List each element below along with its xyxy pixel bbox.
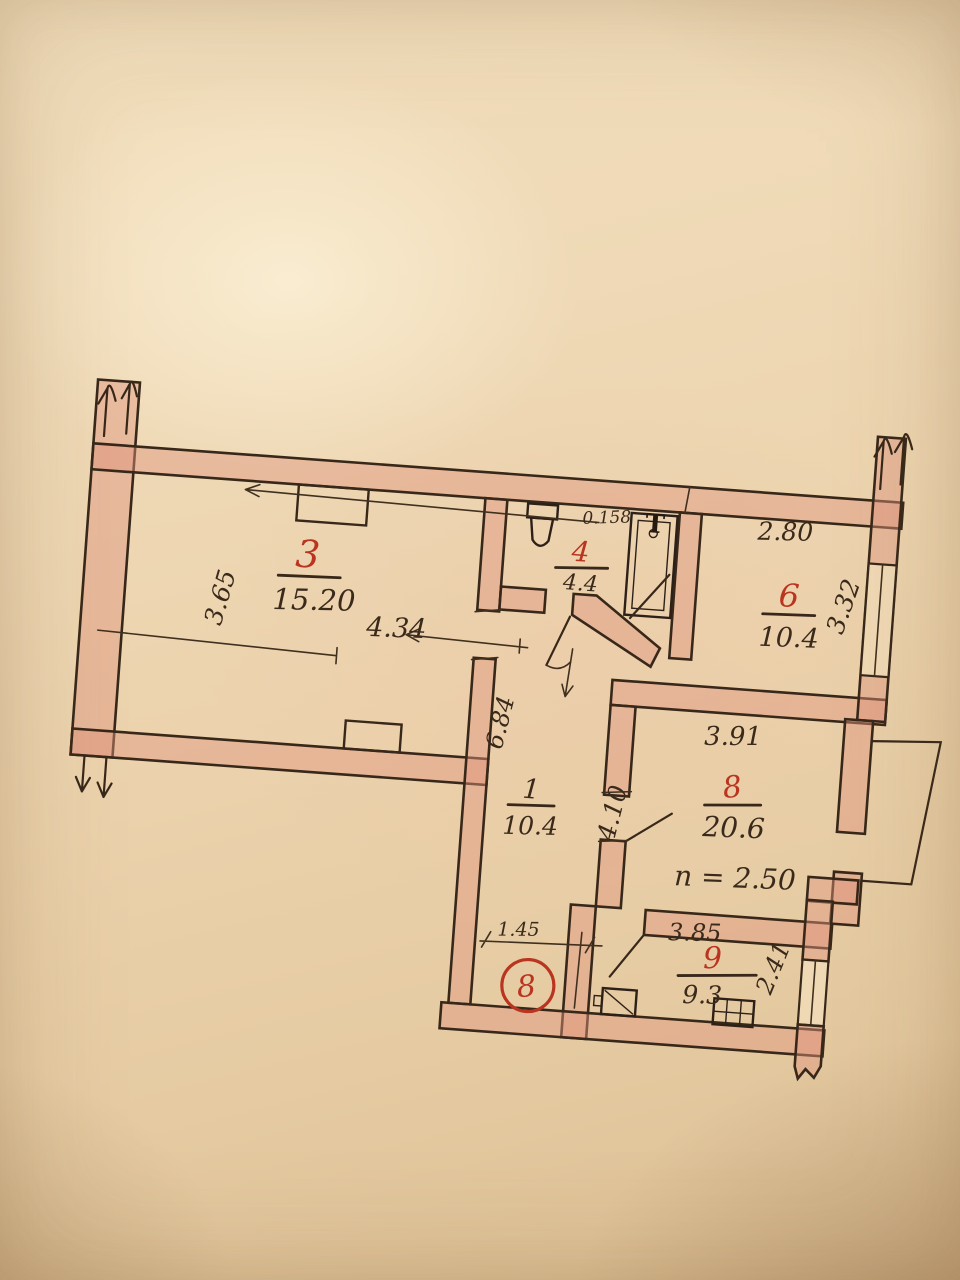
- section-arrow-bottom-left-1: [75, 755, 92, 792]
- dim-line-room3-left: [97, 630, 338, 664]
- wall-room8-right-a: [837, 719, 873, 834]
- dim-room3-depth: 3.65: [198, 566, 241, 628]
- room-4-number: 4: [570, 535, 591, 569]
- balcony-outline: [861, 737, 940, 886]
- door-swing-bath: [546, 615, 570, 666]
- bath-scribble: 0.158: [582, 507, 631, 529]
- room-3-area: 15.20: [272, 582, 356, 618]
- room-6-area: 10.4: [758, 622, 819, 655]
- bath-fixture-mark: Т: [644, 509, 666, 540]
- door-swing-room8: [626, 810, 672, 844]
- floor-plan: 3 15.20 4.34 3.65 0.158 Т 4 4.4 6 10.4 2…: [17, 369, 947, 1142]
- wall-left-section: [71, 379, 140, 757]
- pilaster-top: [296, 484, 368, 525]
- tick-hall-door: [472, 608, 502, 662]
- wall-kitchen-right-a: [802, 900, 832, 962]
- wall-room8-left-b: [596, 840, 626, 909]
- sink-icon: [593, 987, 637, 1016]
- dim-room6-depth: 3.32: [820, 575, 866, 637]
- room-1-number: 1: [521, 774, 540, 806]
- construction-lines: [73, 445, 696, 1014]
- apartment-number-circle: 8: [500, 958, 556, 1014]
- apartment-number: 8: [516, 969, 537, 1005]
- wall-bottom: [439, 1002, 824, 1056]
- dim-room6-width: 2.80: [756, 517, 813, 547]
- room-8-area: 20.6: [701, 810, 766, 845]
- dim-room9-depth: 2.41: [750, 938, 796, 999]
- bath-pointer-line: [561, 648, 575, 697]
- dim-room8-width: 3.91: [704, 722, 762, 752]
- door-arc-bath: [546, 660, 570, 669]
- dim-room9-width: 3.85: [668, 918, 722, 947]
- dim-hall-opening: 1.45: [497, 919, 539, 941]
- photographed-paper: 3 15.20 4.34 3.65 0.158 Т 4 4.4 6 10.4 2…: [0, 0, 960, 1280]
- door-swing-room6: [630, 572, 669, 621]
- section-arrow-bottom-left-2: [97, 757, 114, 798]
- room-3-number: 3: [294, 531, 321, 577]
- toilet-icon: [525, 503, 558, 547]
- room-4-area: 4.4: [561, 570, 599, 598]
- room-8-height-note: n = 2.50: [674, 859, 797, 897]
- wall-bath-bottom: [499, 587, 546, 613]
- wall-room3-bottom: [71, 729, 489, 785]
- fixtures: [491, 503, 789, 1027]
- room-8-number: 8: [721, 769, 744, 806]
- room-9-area: 9.3: [682, 980, 722, 1010]
- dim-room8-depth: 4.10: [591, 782, 633, 844]
- wall-bath-room6: [669, 512, 702, 659]
- room-1-area: 10.4: [502, 811, 558, 841]
- wall-kitchen-right-break: [794, 1024, 824, 1080]
- door-swing-kitchen: [610, 933, 644, 979]
- wall-bath-diagonal: [569, 594, 664, 667]
- pilaster-bottom: [344, 721, 402, 753]
- wall-room8-left-a: [604, 705, 636, 797]
- dim-room3-width: 4.34: [365, 612, 427, 645]
- room-6-number: 6: [778, 576, 801, 615]
